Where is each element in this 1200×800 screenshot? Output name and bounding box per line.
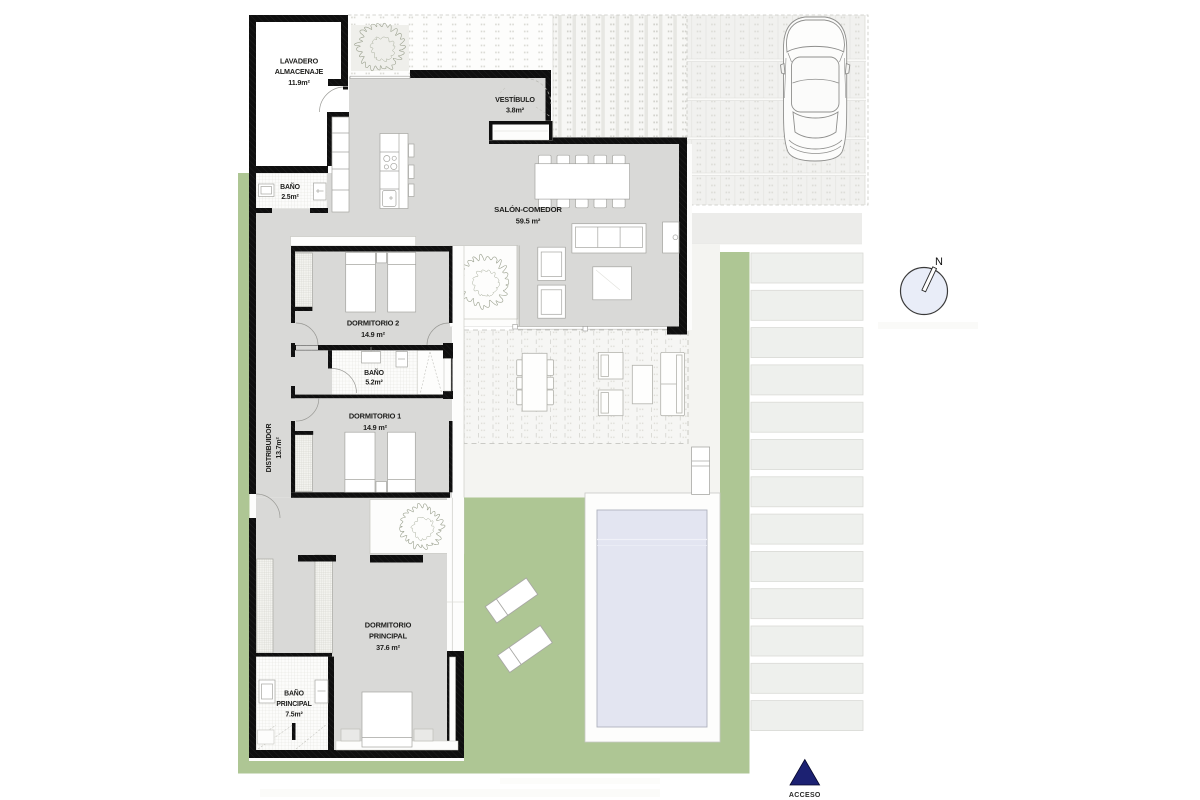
svg-text:DORMITORIO 2: DORMITORIO 2 [347, 319, 399, 328]
svg-text:BAÑO: BAÑO [280, 182, 300, 191]
svg-text:LAVADERO: LAVADERO [280, 57, 319, 66]
svg-text:11.9m²: 11.9m² [288, 78, 310, 87]
svg-text:13.7m²: 13.7m² [276, 437, 283, 459]
svg-text:3.8m²: 3.8m² [506, 106, 525, 115]
svg-text:VESTÍBULO: VESTÍBULO [495, 95, 535, 104]
svg-text:14.9 m²: 14.9 m² [361, 330, 385, 339]
svg-text:PRINCIPAL: PRINCIPAL [276, 701, 311, 708]
svg-text:N: N [935, 256, 943, 268]
svg-text:PRINCIPAL: PRINCIPAL [369, 632, 408, 641]
svg-text:ALMACENAJE: ALMACENAJE [275, 67, 324, 76]
svg-text:DISTRIBUIDOR: DISTRIBUIDOR [266, 424, 273, 473]
svg-text:37.6 m²: 37.6 m² [376, 643, 400, 652]
svg-text:DORMITORIO 1: DORMITORIO 1 [349, 412, 401, 421]
svg-text:14.9 m²: 14.9 m² [363, 423, 387, 432]
svg-text:7.5m²: 7.5m² [285, 712, 303, 719]
svg-text:SALÓN-COMEDOR: SALÓN-COMEDOR [494, 205, 562, 214]
svg-text:BAÑO: BAÑO [284, 689, 304, 698]
svg-text:DORMITORIO: DORMITORIO [365, 621, 412, 630]
svg-text:BAÑO: BAÑO [364, 368, 384, 377]
svg-text:59.5 m²: 59.5 m² [516, 217, 541, 226]
svg-text:ACCESO: ACCESO [789, 792, 821, 799]
svg-text:2.5m²: 2.5m² [281, 194, 299, 201]
svg-text:5.2m²: 5.2m² [365, 380, 383, 387]
